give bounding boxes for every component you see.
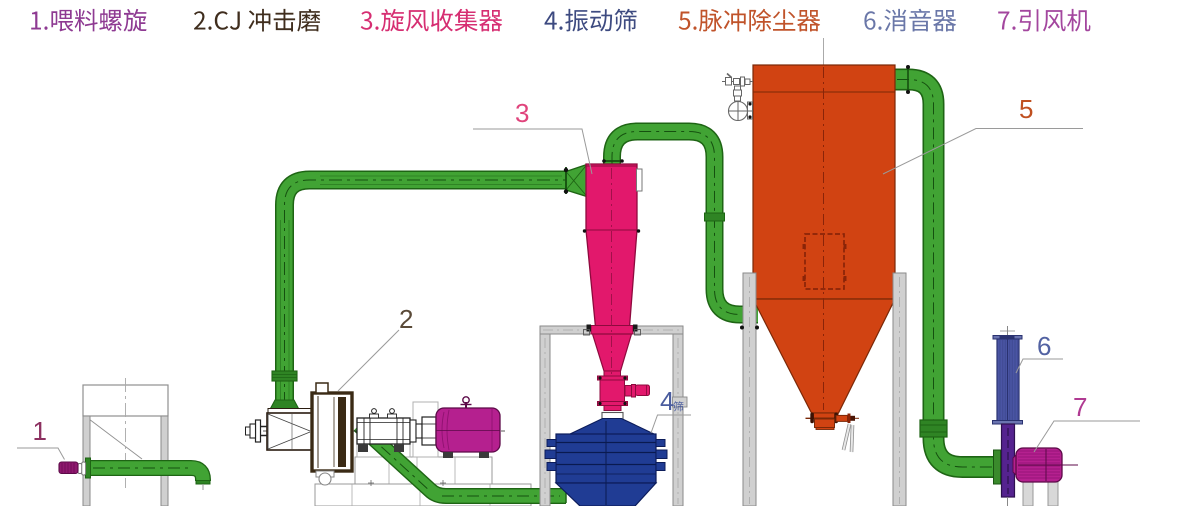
svg-text:1: 1 bbox=[33, 416, 47, 446]
svg-text:5: 5 bbox=[1019, 94, 1033, 124]
svg-text:3: 3 bbox=[515, 98, 529, 128]
svg-text:4: 4 bbox=[660, 386, 674, 416]
svg-text:6: 6 bbox=[1037, 331, 1051, 361]
svg-text:2: 2 bbox=[399, 304, 413, 334]
svg-text:7: 7 bbox=[1073, 392, 1087, 422]
